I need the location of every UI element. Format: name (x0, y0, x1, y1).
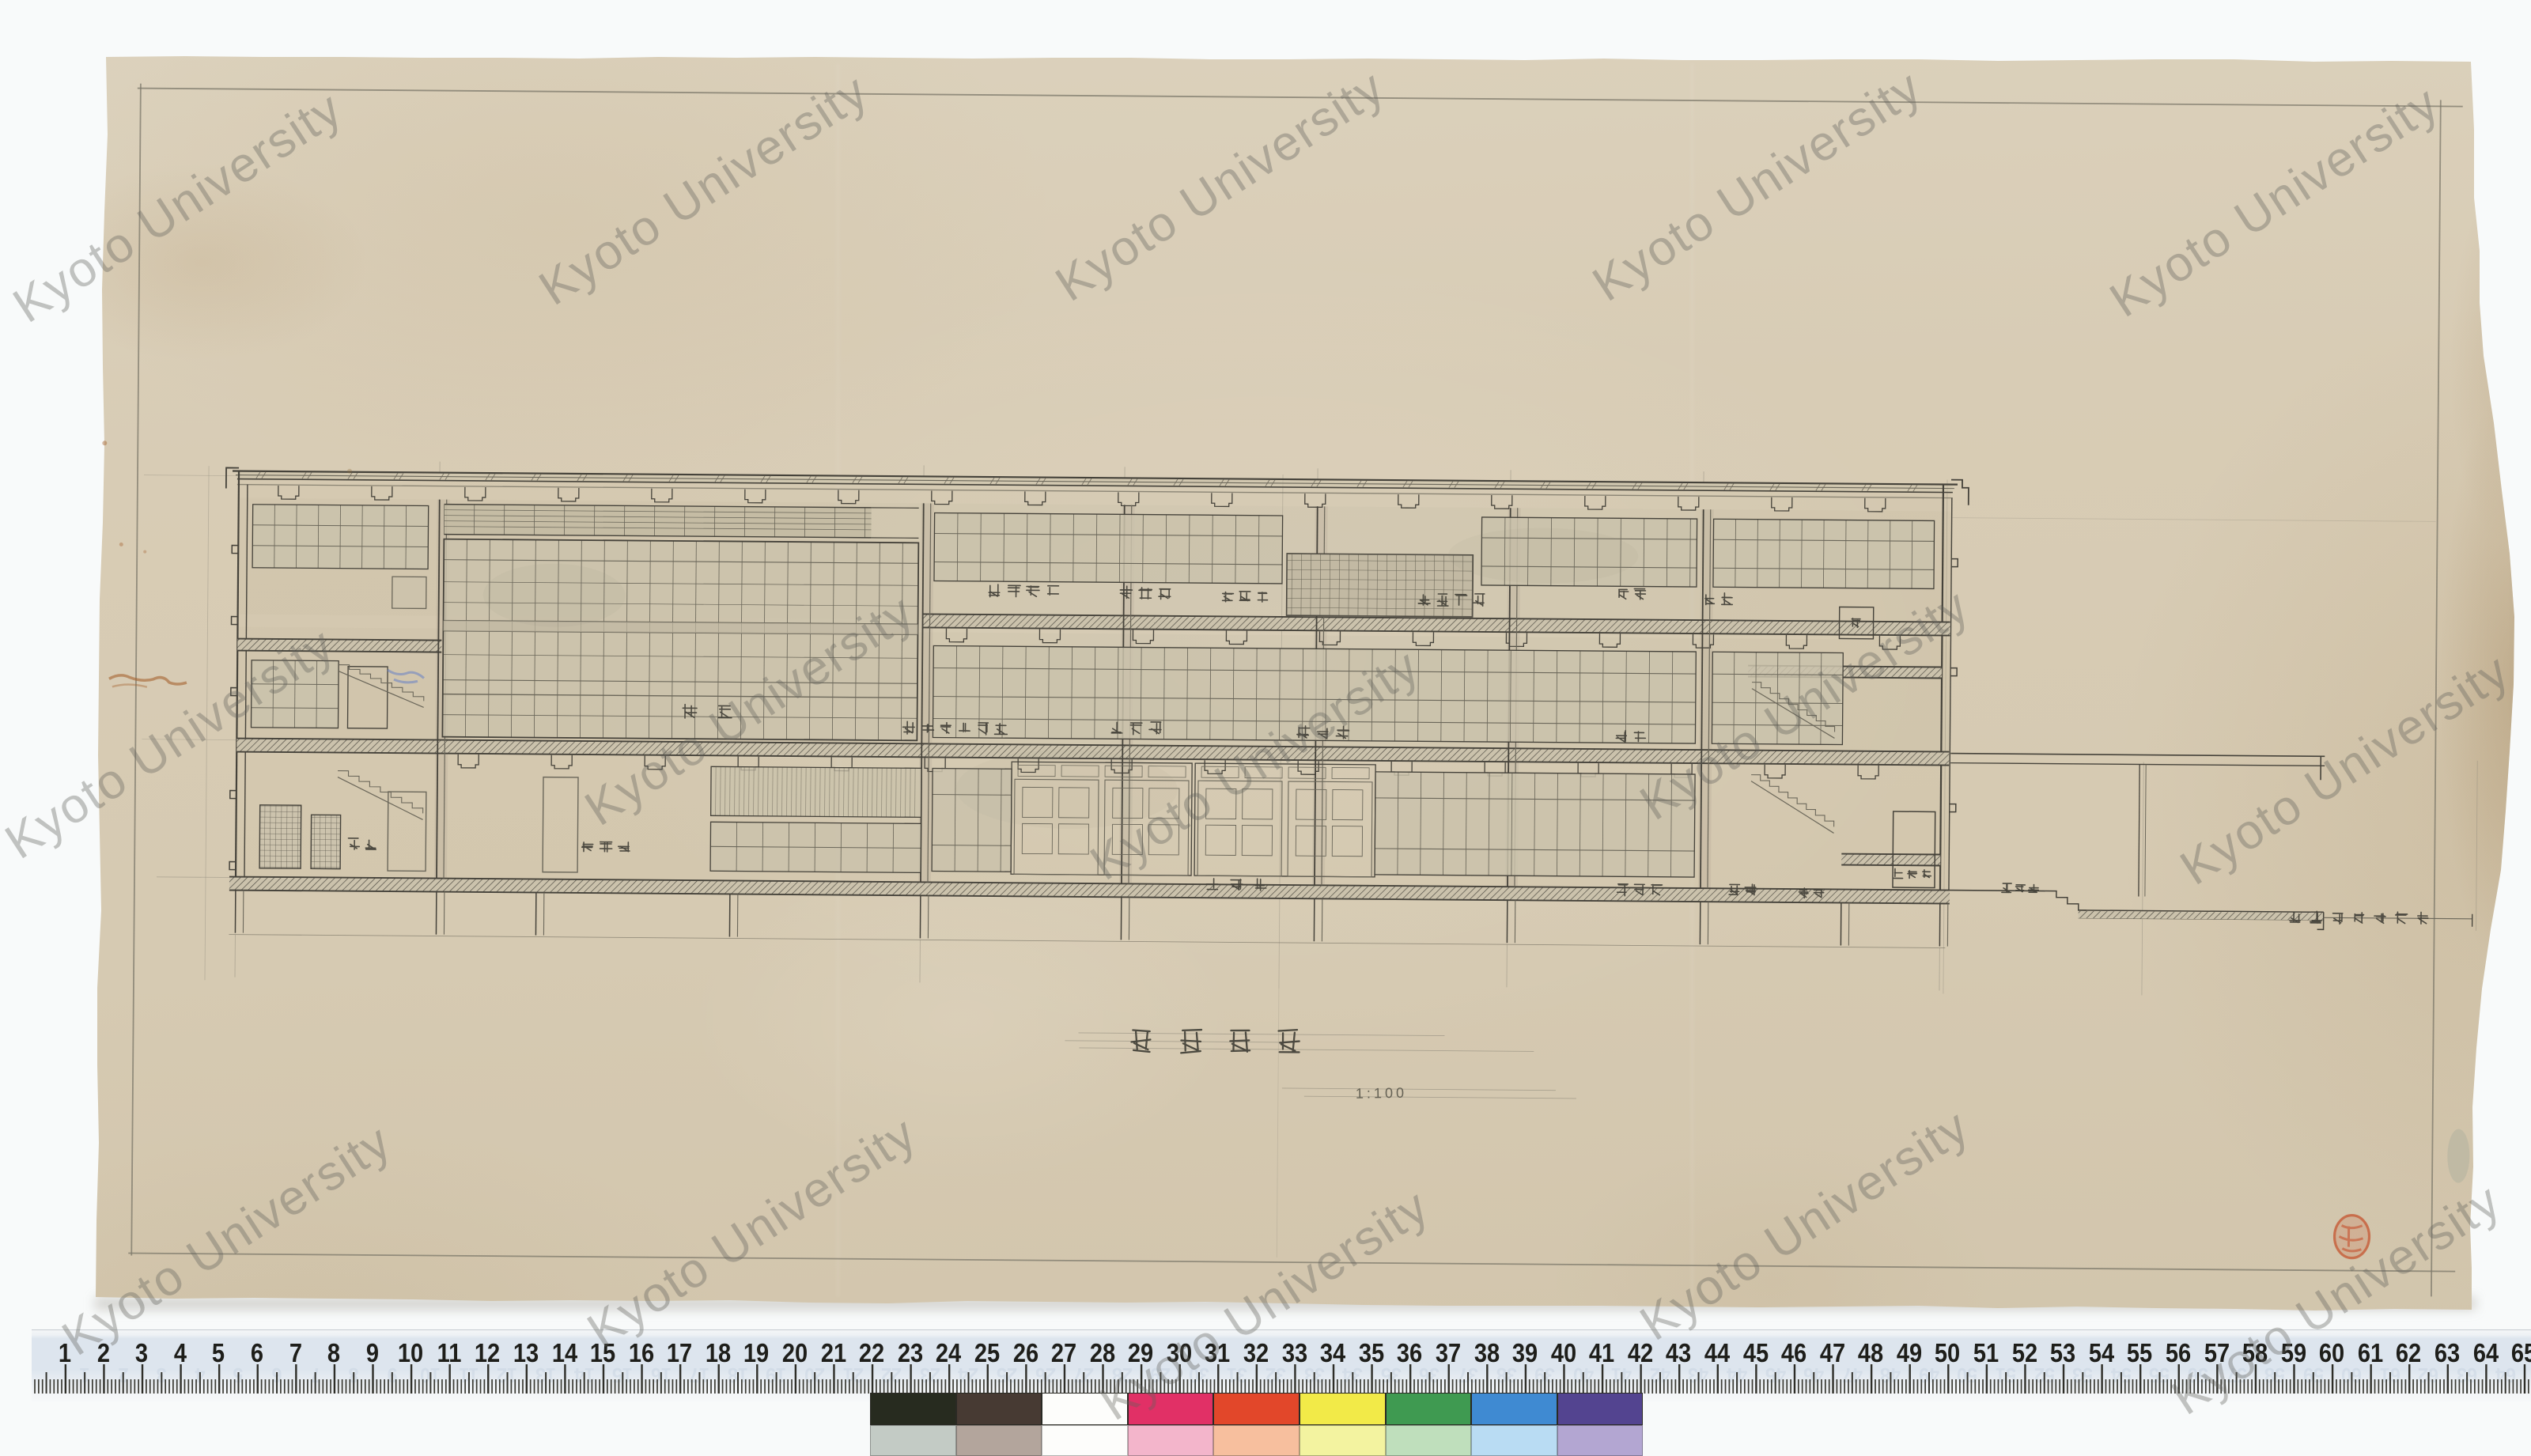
svg-text:1:100: 1:100 (1356, 1085, 1407, 1102)
